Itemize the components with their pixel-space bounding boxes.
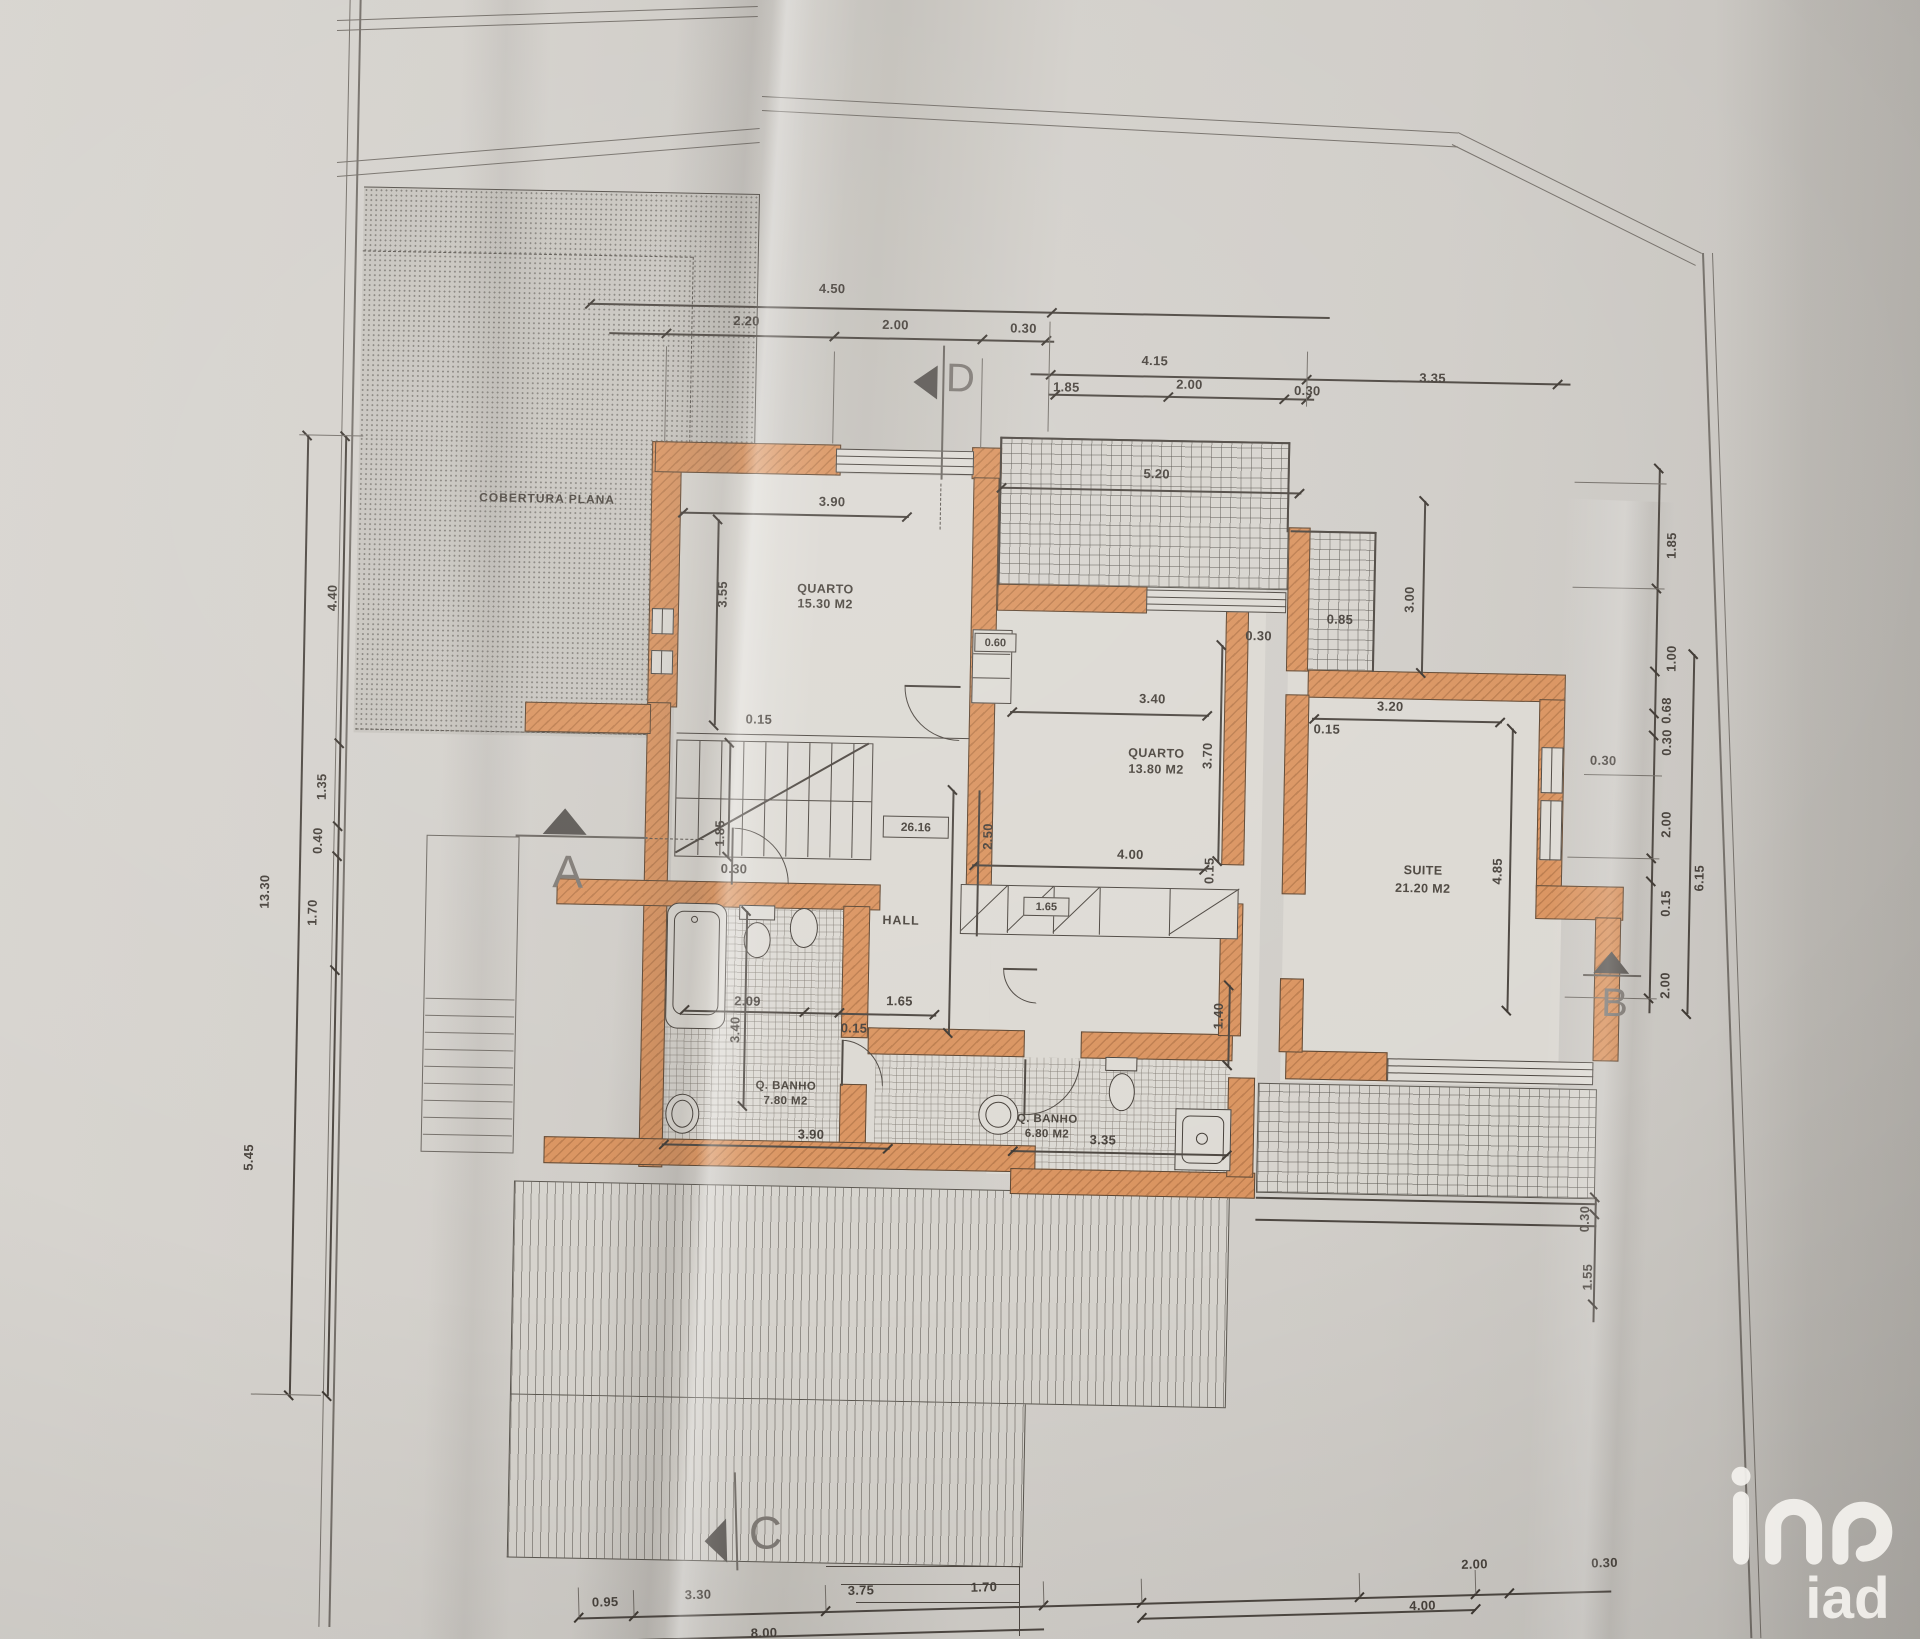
wall — [1010, 1168, 1255, 1199]
dimension-label: 1.85 — [1664, 532, 1680, 559]
dimension-label: 3.35 — [1419, 370, 1446, 386]
balcony-edge-line — [1255, 1219, 1596, 1227]
dimension-label: 0.15 — [1313, 721, 1340, 737]
extension-line — [1584, 774, 1662, 776]
dimension-label: 3.30 — [685, 1587, 712, 1603]
extension-line — [578, 1588, 580, 1618]
wardrobe-row — [960, 884, 1239, 939]
wardrobe-diagonal — [960, 885, 1008, 931]
room-label-suite-name: SUITE — [1404, 863, 1443, 879]
dimension-label: 4.40 — [324, 585, 340, 612]
wall — [1286, 527, 1311, 671]
window — [1146, 590, 1286, 614]
dimension-label: 4.85 — [1489, 858, 1505, 885]
section-arrow-b-icon — [1593, 951, 1629, 974]
dimension-label: 2.20 — [733, 313, 760, 329]
dimension-label: 1.85 — [1053, 379, 1080, 395]
dimension-label: 0.68 — [1658, 697, 1674, 724]
dimension-label: 2.09 — [734, 993, 761, 1009]
flat-roof-area — [359, 186, 760, 444]
extension-line — [1475, 1570, 1477, 1594]
dimension-label: 0.30 — [1010, 320, 1037, 336]
flat-roof-area — [354, 436, 653, 738]
wall — [1285, 1050, 1388, 1081]
wardrobe-divider — [1007, 886, 1009, 933]
wall — [841, 906, 871, 1038]
dimension-label: 4.50 — [819, 281, 846, 297]
dimension-label: 0.15 — [841, 1020, 868, 1036]
room-label-banho1-name: Q. BANHO — [755, 1079, 816, 1095]
dimension-label: 1.00 — [1663, 645, 1679, 672]
dimension-label: 3.40 — [1139, 691, 1166, 707]
dimension-label: 2.00 — [1658, 811, 1674, 838]
dimension-label: 1.85 — [712, 820, 728, 847]
dimension-label: 0.85 — [1327, 612, 1354, 628]
closet-dim-label: 1.65 — [1023, 897, 1069, 917]
room-label-banho2-name: Q. BANHO — [1017, 1112, 1078, 1128]
exterior-stair — [421, 835, 520, 1154]
dimension-label: 0.30 — [721, 861, 748, 877]
dimension-label: 3.90 — [798, 1126, 825, 1142]
wall — [997, 584, 1147, 614]
wall — [655, 441, 842, 476]
iad-logo-mark: iad — [1722, 1448, 1912, 1633]
dimension-label: 0.30 — [1294, 383, 1321, 399]
toilet — [1105, 1057, 1137, 1072]
dimension-label: 8.00 — [751, 1625, 778, 1639]
extension-line — [825, 1585, 827, 1611]
dimension-label: 4.00 — [1409, 1598, 1436, 1614]
terrace-tiles — [1306, 531, 1376, 672]
dimension-label: 3.55 — [715, 581, 731, 608]
room-label-quarto2-area: 13.80 M2 — [1128, 762, 1184, 778]
dimension-label: 2.00 — [1176, 377, 1203, 393]
dimension-label: 3.35 — [1089, 1132, 1116, 1148]
bottom-dimension-group: 0.95 3.30 3.75 1.70 2.00 0.30 4.00 8.00 … — [558, 1440, 1722, 1639]
level-label: 26.16 — [883, 816, 949, 839]
dimension-label: 0.30 — [1591, 1555, 1618, 1571]
dimension-label: 3.20 — [1377, 698, 1404, 714]
dimension-line — [579, 1590, 1612, 1619]
section-marker-d: D — [946, 356, 976, 402]
bathtub-drain — [691, 916, 698, 923]
dimension-label: 1.70 — [970, 1579, 997, 1595]
window — [836, 449, 974, 476]
wardrobe-divider — [1099, 888, 1101, 935]
wall — [1307, 670, 1565, 703]
dimension-label: 0.15 — [1658, 890, 1674, 917]
dimension-label: 5.45 — [241, 1144, 257, 1171]
iad-logo-text: iad — [1805, 1566, 1889, 1631]
wardrobe-divider — [1169, 889, 1171, 936]
dimension-label: 1.55 — [1580, 1264, 1596, 1291]
shelf-line — [973, 677, 1010, 679]
stair-rail-line — [676, 798, 871, 803]
wall — [525, 702, 652, 734]
dimension-label: 3.90 — [819, 494, 846, 510]
room-label-banho2-area: 6.80 M2 — [1025, 1127, 1070, 1143]
dimension-line — [1048, 394, 1314, 401]
window — [1387, 1058, 1593, 1085]
wall — [1279, 978, 1304, 1052]
extension-line — [1567, 857, 1659, 860]
extension-line — [251, 1393, 321, 1395]
balcony-tiles — [998, 437, 1291, 591]
section-arrow-c-icon — [704, 1519, 727, 1564]
dimension-label: 1.65 — [886, 993, 913, 1009]
wall — [839, 1084, 867, 1147]
section-marker-a: A — [552, 844, 584, 899]
dimension-label: 0.30 — [1577, 1206, 1593, 1233]
dimension-label: 1.70 — [304, 899, 320, 926]
dimension-label: 1.35 — [314, 773, 330, 800]
wall — [1282, 694, 1310, 894]
hall-label: HALL — [882, 913, 920, 929]
bathtub-inner — [672, 911, 720, 1016]
dimension-label: 4.00 — [1117, 847, 1144, 863]
section-line — [516, 834, 648, 838]
extension-line — [980, 358, 983, 448]
room-label-quarto2-name: QUARTO — [1128, 746, 1185, 762]
suite-balcony-tiles — [1256, 1083, 1597, 1199]
dimension-label: 6.15 — [1691, 865, 1707, 892]
dimension-label: 3.00 — [1402, 586, 1418, 613]
dimension-label: 0.40 — [310, 827, 326, 854]
dimension-label: 5.20 — [1143, 466, 1170, 482]
shelf-line — [973, 653, 1010, 655]
dimension-label: 3.75 — [848, 1582, 875, 1598]
floor-plan-photo: COBERTURA PLANA — [0, 0, 1920, 1639]
room-label-quarto1-area: 15.30 M2 — [797, 596, 853, 612]
section-arrow-d-icon — [913, 365, 938, 399]
closet-dim-label: 0.60 — [974, 633, 1016, 653]
room-label-banho1-area: 7.80 M2 — [763, 1094, 808, 1110]
section-marker-b: B — [1601, 981, 1629, 1027]
extension-line — [832, 351, 835, 443]
extension-line — [1359, 1573, 1361, 1597]
dimension-label: 4.15 — [1141, 353, 1168, 369]
extension-line — [1573, 587, 1665, 590]
extension-line — [1141, 1579, 1143, 1603]
dimension-label: 0.30 — [1590, 753, 1617, 769]
dimension-line — [1421, 501, 1426, 675]
dimension-label: 0.30 — [1659, 729, 1675, 756]
extension-line — [1043, 1581, 1045, 1605]
dimension-label: 0.30 — [1245, 628, 1272, 644]
deck — [510, 1181, 1230, 1409]
dimension-label: 3.40 — [727, 1016, 743, 1043]
section-line — [734, 1472, 738, 1570]
wall — [972, 447, 1003, 480]
wall — [1080, 1031, 1232, 1061]
section-arrow-a-icon — [543, 808, 587, 835]
drawing-layer: COBERTURA PLANA — [0, 0, 1920, 1639]
dimension-label: 2.00 — [882, 317, 909, 333]
dimension-label: 0.95 — [592, 1594, 619, 1610]
dimension-label: 2.00 — [1461, 1556, 1488, 1572]
dimension-label: 3.70 — [1200, 742, 1216, 769]
dimension-line — [1686, 654, 1694, 1014]
wall — [1536, 699, 1566, 891]
dimension-label: 0.15 — [746, 711, 773, 727]
section-marker-c: C — [748, 1505, 783, 1560]
iad-logo: iad — [1722, 1448, 1912, 1633]
flat-roof-label: COBERTURA PLANA — [479, 490, 615, 508]
room-label-quarto1-name: QUARTO — [797, 581, 854, 597]
dimension-label: 2.00 — [1657, 972, 1673, 999]
room-label-suite-area: 21.20 M2 — [1395, 881, 1451, 897]
staircase — [674, 740, 873, 861]
dimension-label: 2.50 — [980, 823, 996, 850]
extension-line — [1575, 482, 1667, 485]
extension-line — [633, 1590, 635, 1616]
dimension-label: 0.15 — [1201, 857, 1217, 884]
dimension-label: 13.30 — [257, 874, 273, 908]
wall — [1535, 885, 1624, 921]
dimension-label: 1.40 — [1211, 1003, 1227, 1030]
wardrobe-diagonal — [1169, 888, 1240, 935]
